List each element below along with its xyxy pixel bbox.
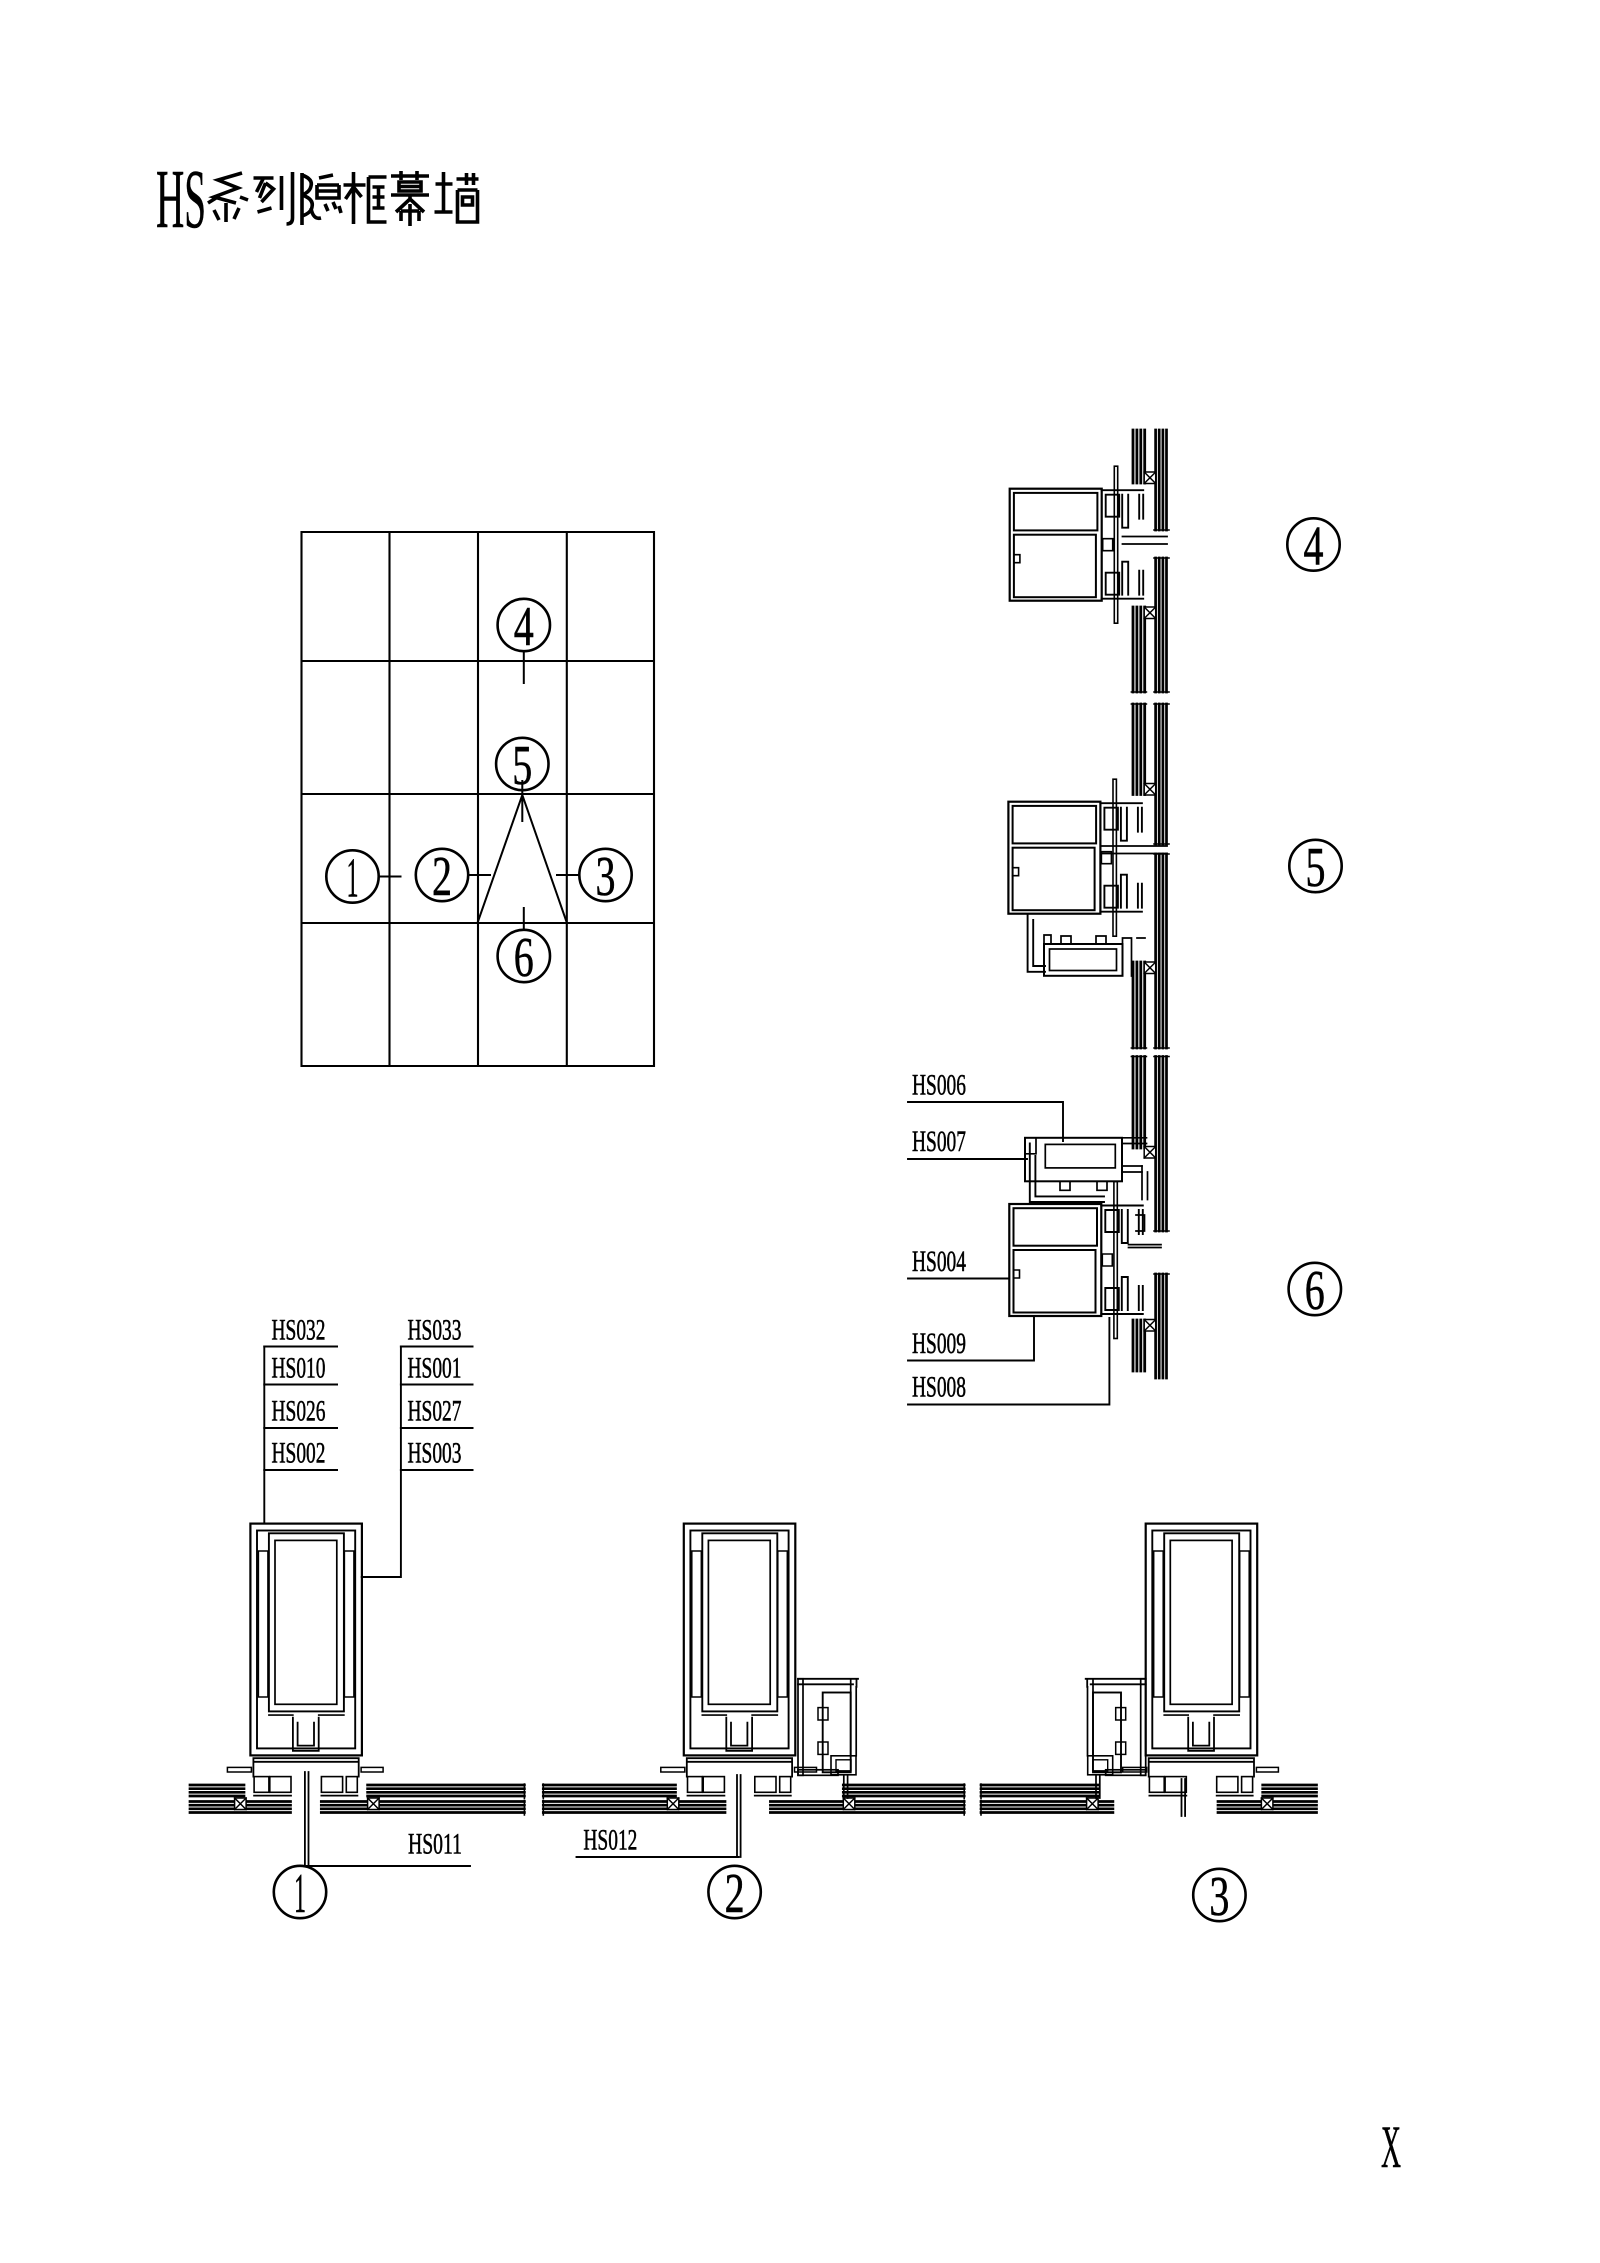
svg-text:2: 2 [725,1863,745,1925]
svg-text:3: 3 [1209,1866,1229,1928]
svg-text:3: 3 [596,846,616,908]
svg-text:HS001: HS001 [408,1351,462,1384]
svg-text:HS026: HS026 [272,1394,326,1427]
svg-text:6: 6 [1305,1260,1325,1322]
svg-text:HS003: HS003 [408,1437,462,1470]
svg-text:HS010: HS010 [272,1351,326,1384]
svg-text:HS011: HS011 [408,1828,462,1861]
svg-text:HS027: HS027 [408,1394,462,1427]
svg-text:5: 5 [1306,837,1326,899]
svg-text:HS007: HS007 [912,1125,966,1158]
svg-text:HS032: HS032 [272,1313,326,1346]
svg-text:1: 1 [294,1863,306,1925]
svg-text:6: 6 [514,927,534,989]
svg-text:2: 2 [432,846,452,908]
svg-text:4: 4 [514,596,534,658]
svg-text:1: 1 [347,848,359,910]
svg-text:HS002: HS002 [272,1437,326,1470]
svg-text:4: 4 [1304,516,1324,578]
svg-text:HS008: HS008 [912,1371,966,1404]
svg-text:HS012: HS012 [583,1824,637,1857]
svg-text:HS006: HS006 [912,1069,966,1102]
svg-text:HS009: HS009 [912,1327,966,1360]
svg-text:HS004: HS004 [912,1245,966,1278]
svg-text:HS: HS [156,153,206,246]
svg-text:HS033: HS033 [408,1313,462,1346]
svg-text:5: 5 [512,735,532,797]
svg-text:X: X [1381,2114,1401,2180]
